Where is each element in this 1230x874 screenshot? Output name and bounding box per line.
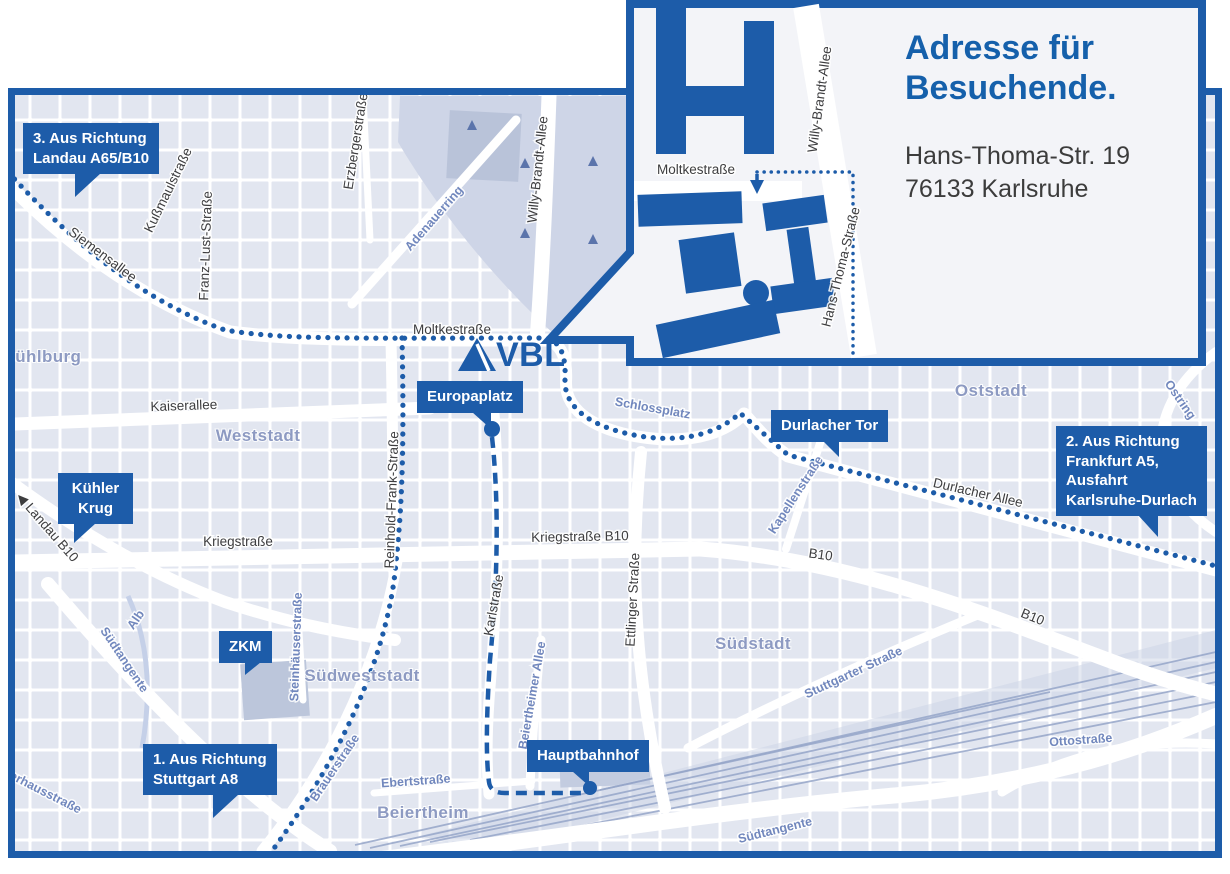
badge-zkm: ZKM [219,631,272,663]
badge-line: 3. Aus Richtung [33,129,149,149]
map-label-weststadt: Weststadt [216,426,301,445]
inset-address: Hans-Thoma-Str. 19 76133 Karlsruhe [905,140,1130,205]
badge-pointer-icon [823,441,839,457]
badge-line: Durlacher Tor [781,416,878,436]
map-label-kriegstraße: Kriegstraße [203,534,273,549]
vbl-directions-map: SiemensalleeKußmaulstraßeFranz-Lust-Stra… [0,0,1230,874]
map-label-moltkestraße: Moltkestraße [413,322,491,337]
badge-hauptbahnhof: Hauptbahnhof [527,740,649,772]
badge-line: Karlsruhe-Durlach [1066,491,1197,511]
badge-pointer-icon [74,523,96,543]
badge-line: Frankfurt A5, [1066,452,1197,472]
badge-line: ZKM [229,637,262,657]
badge-line: Europaplatz [427,387,513,407]
badge-line: Kühler [68,479,123,499]
badge-durlacher-tor: Durlacher Tor [771,410,888,442]
inset-title: Adresse für Besuchende. [905,28,1117,108]
badge-pointer-icon [75,173,101,197]
badge-pointer-icon [1138,515,1158,537]
vbl-pyramid-icon [458,338,496,371]
badge-richtung-landau: 3. Aus RichtungLandau A65/B10 [23,123,159,174]
badge-line: Krug [68,499,123,519]
address-city: 76133 Karlsruhe [905,173,1130,206]
badge-pointer-icon [245,662,261,675]
inset-label-moltkestraße: Moltkestraße [657,162,735,177]
stop-dot-hauptbahnhof [583,781,597,795]
inset-title-line2: Besuchende. [905,68,1117,108]
stop-dot-europaplatz [484,421,500,437]
badge-kuehler-krug: KühlerKrug [58,473,133,524]
badge-line: Ausfahrt [1066,471,1197,491]
badge-line: 2. Aus Richtung [1066,432,1197,452]
inset-title-line1: Adresse für [905,28,1117,68]
map-label-mühlburg: Mühlburg [15,347,81,366]
badge-line: Hauptbahnhof [537,746,639,766]
map-label-südweststadt: Südweststadt [304,666,419,685]
address-street: Hans-Thoma-Str. 19 [905,140,1130,173]
badge-line: 1. Aus Richtung [153,750,267,770]
inset-callout: MoltkestraßeWilly-Brandt-AlleeHans-Thoma… [540,0,1216,400]
map-label-kriegstraße-b10: Kriegstraße B10 [531,528,629,545]
map-label-kaiserallee: Kaiserallee [150,397,217,414]
badge-richtung-stuttgart: 1. Aus RichtungStuttgart A8 [143,744,277,795]
badge-pointer-icon [213,794,239,818]
map-label-beiertheim: Beiertheim [377,803,469,822]
badge-europaplatz: Europaplatz [417,381,523,413]
badge-richtung-frankfurt: 2. Aus RichtungFrankfurt A5,AusfahrtKarl… [1056,426,1207,516]
badge-line: Stuttgart A8 [153,770,267,790]
badge-line: Landau A65/B10 [33,149,149,169]
map-label-südstadt: Südstadt [715,634,791,653]
